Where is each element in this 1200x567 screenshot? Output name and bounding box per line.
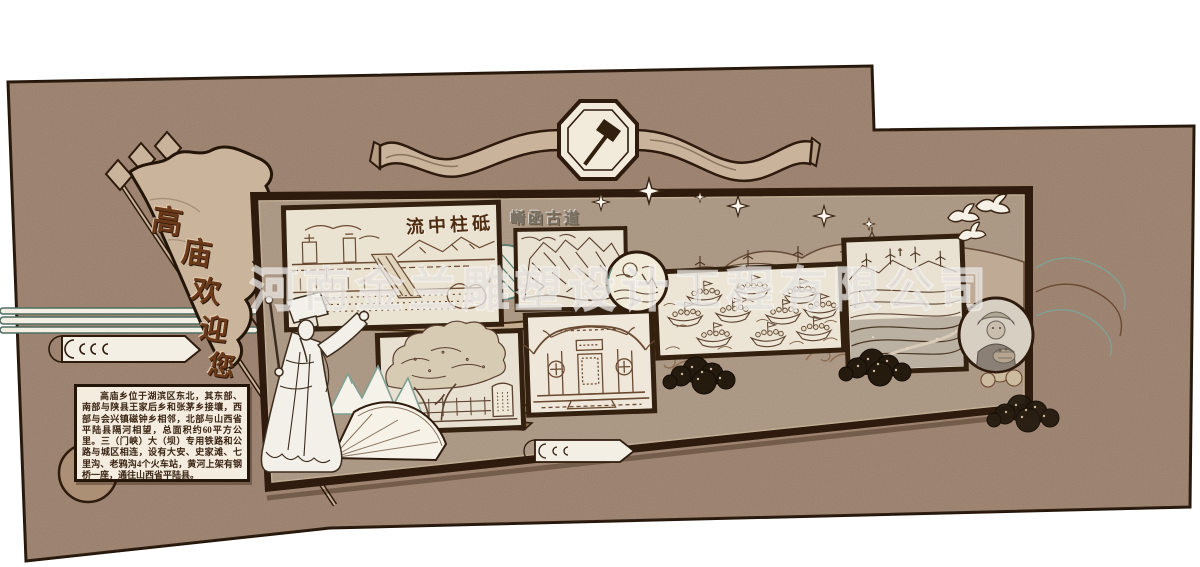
temple-panel xyxy=(521,311,658,416)
dam-panel-title: 流中柱砥 xyxy=(405,209,494,240)
township-intro-textbox: 高庙乡位于湖滨区东北，其东部、南部与陕县王家后乡和张茅乡接壤，西部与会兴镇磁钟乡… xyxy=(74,384,250,482)
terraced-fields-panel xyxy=(844,236,967,373)
scroll-pipes-small xyxy=(524,440,634,462)
ancient-road-panel-title: 崤函古道 xyxy=(510,207,582,228)
flag-char: 您 xyxy=(206,343,238,385)
flag-char: 欢 xyxy=(189,266,224,312)
party-emblem-octagon xyxy=(559,101,637,179)
farmer-photo-medallion xyxy=(959,298,1033,374)
ferry-boats-panel xyxy=(654,264,844,358)
rock-medallion xyxy=(607,252,667,312)
cultural-wall-design: 河南金兰雕塑设计工程有限公司 高 庙 欢 迎 您 流中柱砥 崤函古道 高庙乡位于… xyxy=(0,0,1200,567)
